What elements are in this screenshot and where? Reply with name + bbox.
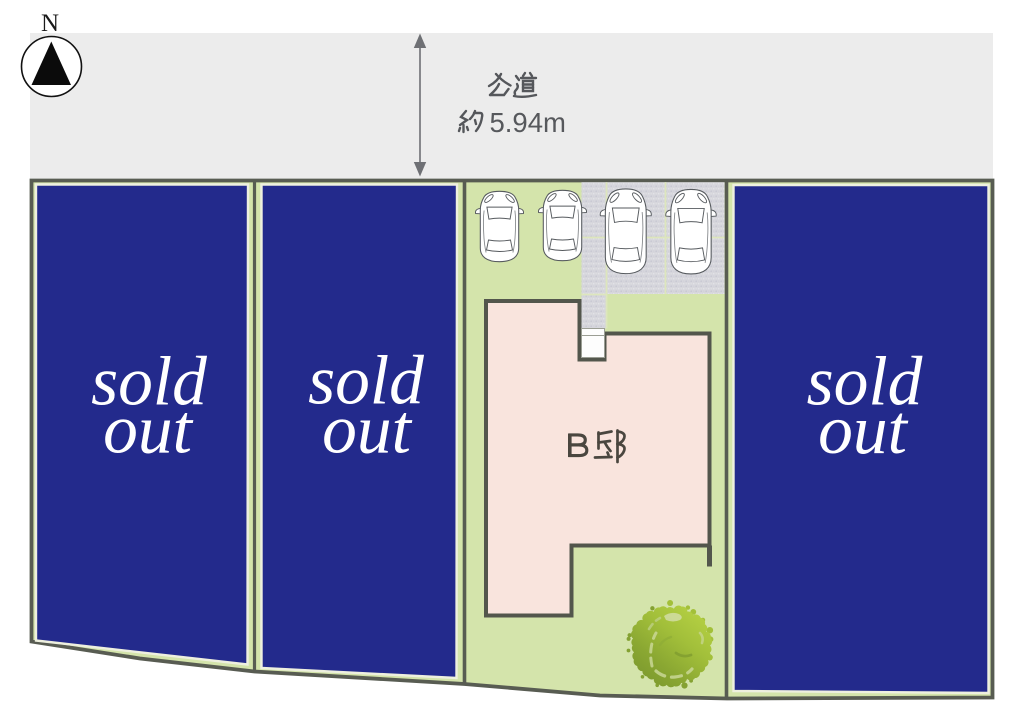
svg-text:5.94m: 5.94m	[490, 107, 566, 138]
svg-text:out: out	[103, 392, 194, 469]
svg-text:N: N	[41, 10, 59, 37]
svg-text:out: out	[322, 392, 413, 469]
svg-text:out: out	[818, 392, 909, 469]
